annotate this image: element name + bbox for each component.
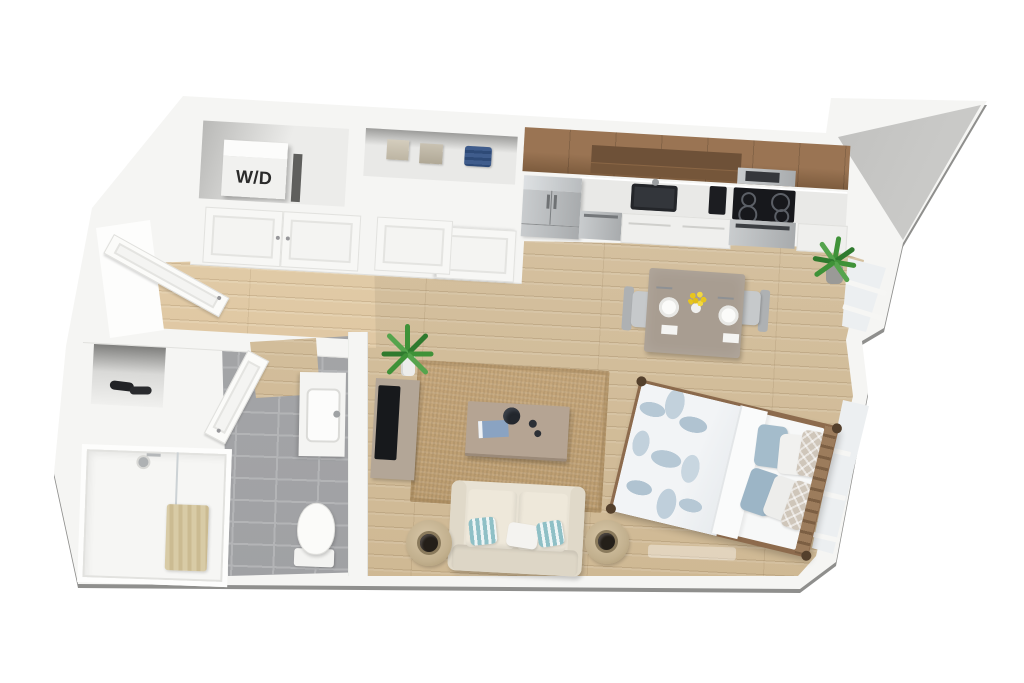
toilet-bowl [296, 502, 336, 555]
decor-vase [503, 407, 521, 425]
washer-dryer-label: W/D [221, 156, 287, 200]
kitchen [499, 126, 861, 258]
tv [374, 385, 400, 460]
tv-console [370, 378, 420, 480]
range-cooktop [732, 187, 796, 223]
oven-handle [736, 223, 790, 230]
dining-table [644, 268, 746, 358]
coffee-table [465, 401, 570, 462]
door-panel-inset [444, 235, 508, 275]
door-panel-inset [383, 225, 445, 266]
open-shelf [590, 145, 741, 182]
coffee-maker [708, 186, 727, 215]
shoe [130, 387, 152, 395]
vanity-faucet [333, 411, 340, 418]
shower-head [138, 457, 148, 467]
cutlery [718, 297, 734, 300]
drawer-pull [682, 225, 724, 229]
folded-linens [464, 146, 492, 168]
napkin [723, 333, 740, 343]
refrigerator [521, 175, 582, 238]
pouf-top [598, 533, 615, 550]
storage-box [386, 139, 409, 160]
drawer-cabinet [620, 213, 732, 249]
laundry-closet: W/D [190, 108, 357, 213]
shoe-niche [91, 344, 166, 408]
plate [718, 305, 739, 326]
door-panel-inset [211, 215, 275, 259]
vanity [299, 372, 346, 457]
closet-double-door-left [202, 207, 283, 267]
pouf-right [585, 520, 629, 564]
linen-closet-shelf [363, 128, 518, 185]
storage-box [419, 143, 443, 164]
oven-front [729, 219, 796, 249]
living-plant [380, 310, 435, 380]
dining-set [617, 262, 774, 372]
plate [658, 297, 679, 318]
door-panel-inset [289, 220, 353, 264]
napkin [661, 325, 678, 335]
wall-bathroom-living [348, 332, 368, 576]
kitchen-sink [630, 183, 677, 212]
toilet [292, 502, 338, 573]
dishwasher [579, 210, 623, 240]
shower-towel [165, 504, 209, 571]
decor-item [534, 430, 541, 437]
throw-pillow-teal [536, 519, 566, 548]
pouf-top [420, 534, 438, 552]
kitchen-plant [810, 222, 862, 288]
throw-pillow-teal [468, 516, 498, 546]
floorplan-render: W/D [0, 0, 1024, 683]
microwave-window [745, 171, 780, 183]
loveseat-sofa [447, 480, 586, 577]
decor-item [529, 420, 537, 428]
sliding-door-back [374, 217, 453, 275]
microwave [737, 167, 796, 186]
flowers [687, 291, 708, 308]
shower [77, 444, 232, 587]
closet-double-door-right [280, 211, 361, 271]
throw-pillow-white [505, 521, 539, 550]
dishwasher-handle [584, 214, 618, 219]
shower-arm [147, 453, 161, 456]
washer-dryer-unit: W/D [221, 140, 288, 200]
door-handle [216, 428, 221, 433]
drawer-pull [629, 222, 671, 226]
fridge-freezer-drawer [521, 223, 580, 239]
pouf-left [406, 520, 452, 566]
cutlery [656, 286, 672, 289]
book [478, 420, 509, 438]
